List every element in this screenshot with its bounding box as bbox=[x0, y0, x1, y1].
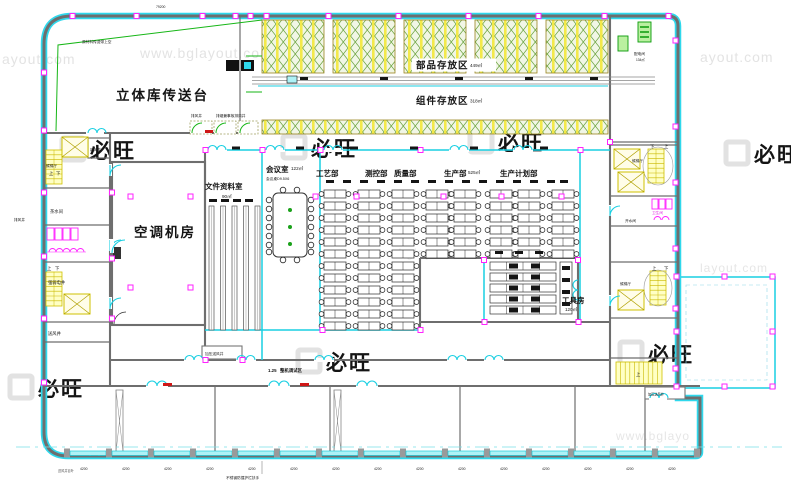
dept-label-quality: 质量部 bbox=[394, 168, 417, 178]
watermark-url: ayout.com bbox=[2, 51, 76, 67]
room-note-meeting-room: 会议桌D9.5X6 bbox=[266, 176, 289, 181]
shaft-label-pressurized: 加压送风井 bbox=[205, 351, 224, 356]
room-area-document-room: 90㎡ bbox=[222, 193, 232, 199]
room-label-elevator-lobby: 候梯厅 bbox=[632, 158, 643, 163]
conference-table bbox=[266, 187, 314, 263]
floor-plan-canvas: 必旺 www.bglayout.com ayout.com ayout.com … bbox=[0, 0, 791, 483]
dept-area-production: 525㎡ bbox=[468, 169, 481, 175]
room-label-elevator-lobby: 候梯厅 bbox=[46, 163, 57, 168]
room-label-water-room: 开水间 bbox=[625, 218, 636, 223]
floor-plan-drawing: 必旺 www.bglayout.com ayout.com ayout.com … bbox=[0, 0, 791, 483]
dim-label: 4200 bbox=[122, 467, 130, 471]
toilet-fixtures bbox=[47, 228, 86, 252]
dept-label-planning: 生产计划部 bbox=[500, 168, 538, 178]
room-label-debug-area: 整机调试区 bbox=[279, 367, 303, 374]
room-label-toilet: 卫生间 bbox=[652, 210, 663, 215]
watermark-url: www.bglayout.com bbox=[139, 45, 273, 61]
watermark-url: ayout.com bbox=[700, 49, 774, 65]
stair-down-label: 下 bbox=[55, 266, 60, 272]
terrace bbox=[678, 277, 775, 388]
stair-up-label: 上 bbox=[652, 265, 657, 271]
dim-label: 4200 bbox=[584, 467, 592, 471]
dim-label: 4200 bbox=[248, 467, 256, 471]
room-label-conveyor-platform: 立体库传送台 bbox=[116, 87, 209, 103]
dim-label: 4200 bbox=[206, 467, 214, 471]
annotation-handrail: 不锈钢防撞护栏扶手 bbox=[226, 475, 259, 480]
room-label-meeting-room: 会议室 bbox=[266, 164, 289, 174]
dept-label-measurement: 测控部 bbox=[365, 168, 388, 178]
shaft-label-fresh-air: 新风井 bbox=[90, 147, 101, 152]
room-label-power-room: 配电间 bbox=[634, 51, 645, 56]
room-label-elevator-lobby: 候梯厅 bbox=[620, 281, 631, 286]
stair-up-label: 上 bbox=[47, 265, 52, 271]
dim-label: 4200 bbox=[458, 467, 466, 471]
dim-label: 4200 bbox=[542, 467, 550, 471]
dim-label: 4200 bbox=[80, 467, 88, 471]
dim-total-width: 79200 bbox=[156, 5, 166, 9]
room-area-meeting-room: 122㎡ bbox=[291, 165, 304, 171]
watermark-url: layout.com bbox=[700, 261, 768, 275]
dim-label: 4200 bbox=[290, 467, 298, 471]
stair-up-label: 上 bbox=[664, 143, 669, 149]
room-label-parts-storage: 部品存放区 bbox=[416, 60, 469, 72]
room-area-power-room: 134㎡ bbox=[636, 57, 645, 62]
louver-note: 送风井百叶 bbox=[58, 468, 75, 473]
document-shelves bbox=[209, 199, 260, 330]
room-label-document-room: 文件资料室 bbox=[205, 181, 243, 191]
shaft-label-smoke-exhaust: 排烟兼事故排风井 bbox=[216, 113, 246, 118]
dim-label: 4200 bbox=[332, 467, 340, 471]
stairs-icon bbox=[650, 271, 666, 305]
debug-area-value: 1.25 bbox=[268, 368, 277, 373]
room-label-component-storage: 组件存放区 bbox=[416, 95, 469, 107]
room-area-component-storage: 318㎡ bbox=[470, 98, 483, 104]
room-label-tea-room: 茶水间 bbox=[50, 208, 63, 215]
shaft-label-supply-air: 送风井 bbox=[48, 330, 62, 337]
dept-label-process: 工艺部 bbox=[316, 168, 339, 178]
stair-up-label: 上 bbox=[636, 371, 641, 377]
shaft-label-exhaust: 排风井 bbox=[14, 217, 25, 222]
shaft-label-pressurized: 加压送风井 bbox=[648, 392, 664, 397]
elevator-icon bbox=[64, 294, 90, 314]
elevator-icon bbox=[62, 137, 88, 157]
room-area-parts-storage: 449㎡ bbox=[470, 62, 483, 68]
annotation-overhead-conveyor: 原材料传送带上空 bbox=[82, 39, 112, 44]
elevator-icon bbox=[618, 172, 644, 192]
power-room-equipment bbox=[618, 22, 651, 51]
watermark-url: www.bglayo bbox=[615, 429, 690, 443]
dim-label: 4200 bbox=[626, 467, 634, 471]
dim-label: 4200 bbox=[374, 467, 382, 471]
stairs-icon bbox=[46, 272, 62, 306]
room-label-hvac: 空调机房 bbox=[134, 224, 196, 240]
dim-label: 4200 bbox=[500, 467, 508, 471]
dim-label: 4200 bbox=[668, 467, 676, 471]
shaft-label-exhaust: 排风井 bbox=[191, 113, 202, 118]
shaft-closets-top bbox=[190, 121, 258, 134]
dim-label: 4200 bbox=[164, 467, 172, 471]
stairs-icon bbox=[648, 149, 664, 183]
room-area-tool-room: 120㎡ bbox=[565, 306, 578, 312]
stair-up-label: 上 bbox=[49, 170, 54, 176]
elevator-icon bbox=[618, 290, 644, 310]
shaft-label-electrical: 强弱电井 bbox=[48, 279, 66, 286]
room-label-tool-room: 工具房 bbox=[562, 295, 585, 305]
toilet-fixtures bbox=[652, 199, 672, 220]
dept-label-production: 生产部 bbox=[444, 168, 467, 178]
dim-label: 4200 bbox=[416, 467, 424, 471]
